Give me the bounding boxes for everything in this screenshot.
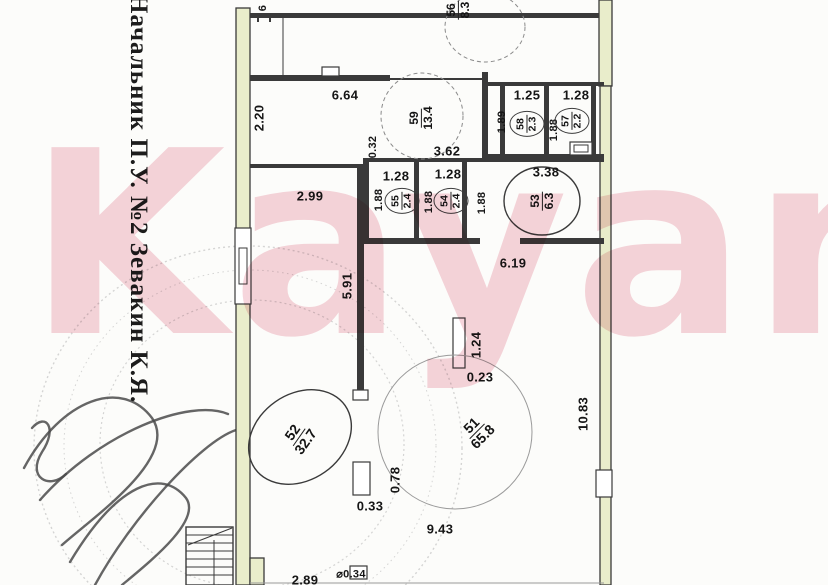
room-stamp: 59 13.4: [408, 106, 434, 129]
dimension-label: 1.24: [469, 332, 484, 359]
dimension-label: 3.62: [434, 144, 461, 159]
room-stamp: 55 2.4: [384, 188, 419, 214]
approval-note: Начальник П.У. №2 Зевакин К.Я.: [124, 0, 152, 403]
dimension-label: 10.83: [576, 397, 591, 431]
floor-plan-page: Начальник П.У. №2 Зевакин К.Я. 6 2.20 6.…: [0, 0, 828, 585]
dimension-label: 6: [257, 5, 269, 11]
room-area: 2.2: [573, 114, 584, 129]
dimension-label: 0.33: [357, 499, 384, 514]
room-stamp: 58 2.3: [509, 111, 544, 137]
dimension-label: 2.20: [252, 105, 267, 132]
dimension-label: 1.28: [383, 169, 410, 184]
dimension-label: 1.88: [476, 192, 488, 215]
dimension-label: 2.89: [292, 573, 319, 585]
signature: [24, 398, 236, 585]
dimension-label: 0.23: [467, 370, 494, 385]
room-area: 8.3: [459, 2, 472, 19]
stairs: [186, 527, 233, 585]
dimension-label: 2.99: [297, 189, 324, 204]
dimension-label: 1.28: [435, 167, 462, 182]
dimension-label: 0.78: [388, 467, 403, 494]
dimension-label: 1.25: [514, 88, 541, 103]
dimension-label: 9.43: [427, 522, 454, 537]
room-area: 6.3: [543, 193, 556, 210]
room-stamp: 54 2.4: [433, 188, 468, 214]
room-number: 53: [529, 191, 543, 210]
room-stamp: 56 8.3: [445, 0, 471, 19]
room-area: 2.4: [403, 194, 414, 209]
dimension-label: 1.88: [373, 189, 385, 212]
room-area: 13.4: [422, 106, 435, 129]
room-stamp: 57 2.2: [554, 108, 589, 134]
walls: [235, 0, 612, 585]
room-number: 56: [445, 0, 459, 19]
dimension-label: 0.32: [367, 136, 379, 159]
dimension-label: 3.38: [533, 165, 560, 180]
room-stamp: 53 6.3: [529, 191, 555, 210]
dimension-label: 6.64: [332, 88, 359, 103]
dimension-label: 5.91: [340, 273, 355, 300]
dimension-label: 6.19: [500, 256, 527, 271]
room-number: 59: [408, 108, 422, 127]
room-area: 2.4: [452, 194, 463, 209]
dimension-label: 1.28: [563, 88, 590, 103]
room-area: 2.3: [528, 117, 539, 132]
dimension-label: ⌀0.34: [336, 568, 366, 581]
dimension-label: 1.89: [496, 111, 508, 134]
